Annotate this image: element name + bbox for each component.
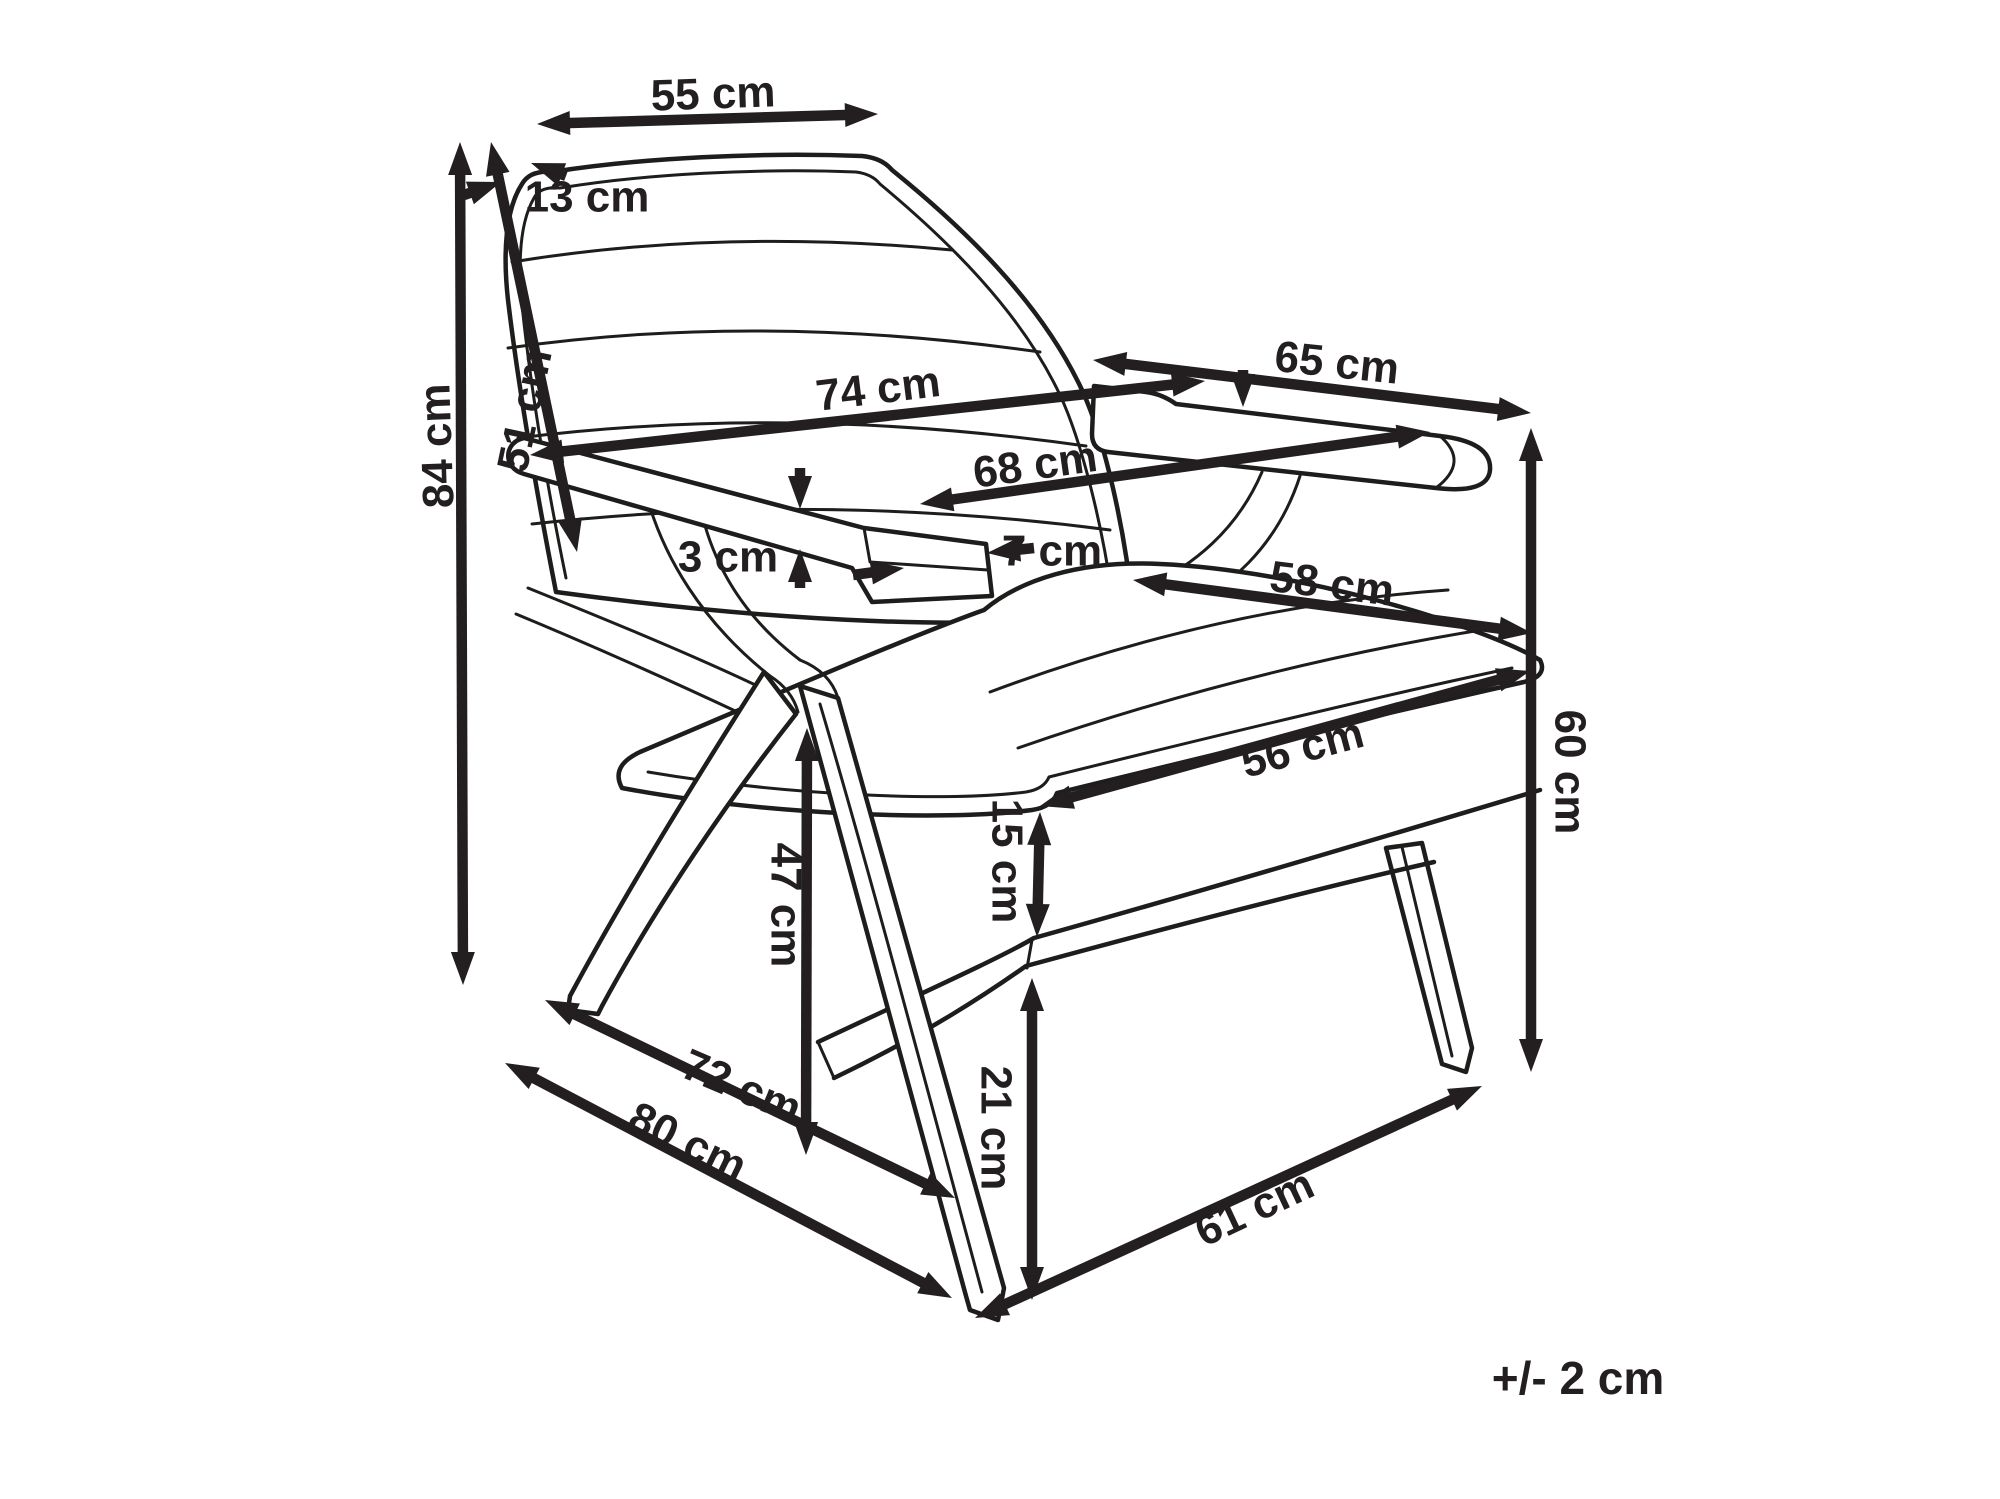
chair-line-art: 55 cm13 cm84 cm51 cm74 cm65 cm68 cm3 cm7… — [0, 0, 2000, 1499]
arrowhead-icon — [486, 142, 509, 177]
arrowhead-icon — [1093, 352, 1127, 376]
arrowhead-icon — [537, 111, 570, 135]
dimension-label: 21 cm — [972, 1066, 1021, 1191]
dimension-arrow-line — [1038, 836, 1040, 913]
arrowhead-icon — [1447, 1086, 1482, 1111]
dimension-label: 61 cm — [1187, 1159, 1321, 1256]
dimension-front-leg-span: 61 cm — [975, 1086, 1482, 1318]
dimension-armrest-height: 60 cm — [1519, 428, 1595, 1072]
arrowhead-icon — [1519, 1039, 1543, 1072]
dimension-diagram: 55 cm13 cm84 cm51 cm74 cm65 cm68 cm3 cm7… — [0, 0, 2000, 1499]
dimension-arrow-line — [460, 166, 463, 961]
dimension-label: 84 cm — [410, 383, 463, 509]
dimension-cushion-height: 15 cm — [983, 799, 1052, 937]
arrowhead-icon — [545, 1000, 580, 1025]
dimension-label: 15 cm — [983, 799, 1032, 924]
arrowhead-icon — [451, 952, 475, 985]
tolerance-note: +/- 2 cm — [1492, 1352, 1665, 1404]
arrowhead-icon — [1231, 374, 1255, 407]
dimension-backrest-width-top: 55 cm — [537, 67, 878, 135]
arrowhead-icon — [917, 1272, 952, 1298]
chair-seat — [619, 563, 1542, 1078]
dimension-label: 60 cm — [1546, 710, 1595, 835]
dimension-label: 47 cm — [762, 843, 811, 968]
arrowhead-icon — [448, 142, 472, 175]
dimension-label: 13 cm — [525, 172, 650, 221]
arrowhead-icon — [505, 1063, 540, 1089]
dimension-total-height: 84 cm — [410, 142, 475, 985]
arrowhead-icon — [1020, 978, 1044, 1011]
dimension-label: 3 cm — [678, 532, 778, 581]
dimension-armrest-top-indicator — [1231, 370, 1255, 407]
dimension-label: 55 cm — [650, 67, 776, 120]
arrowhead-icon — [845, 103, 878, 127]
arrowhead-icon — [1519, 428, 1543, 461]
chair-back-right-leg — [1386, 843, 1472, 1072]
dimension-label: 7 cm — [1002, 526, 1102, 575]
arrowhead-icon — [1497, 397, 1531, 421]
